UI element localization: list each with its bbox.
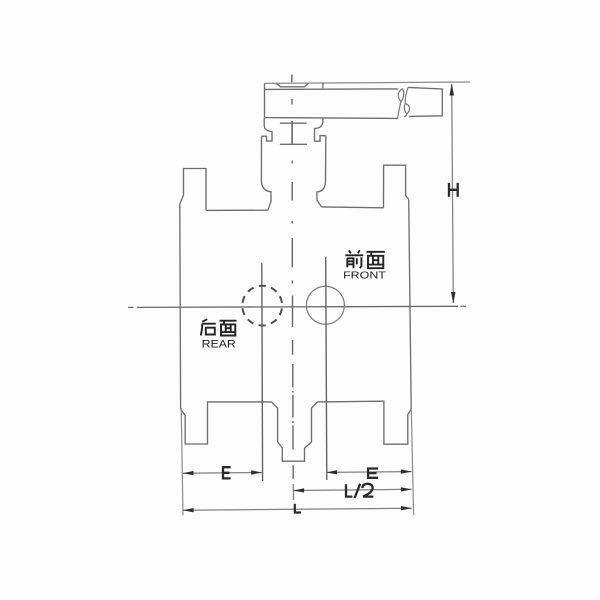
svg-text:FRONT: FRONT — [343, 270, 386, 282]
svg-text:REAR: REAR — [202, 339, 236, 351]
